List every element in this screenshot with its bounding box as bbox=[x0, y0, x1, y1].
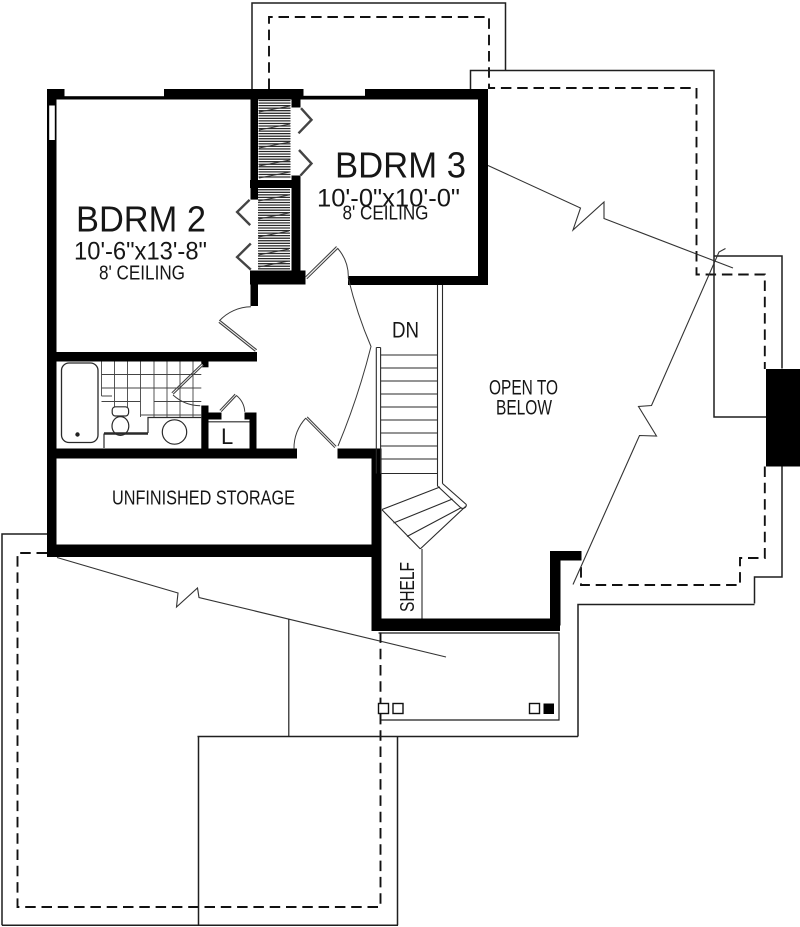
svg-text:L: L bbox=[221, 424, 233, 449]
svg-text:SHELF: SHELF bbox=[397, 562, 419, 612]
svg-text:10'-6"x13'-8": 10'-6"x13'-8" bbox=[74, 238, 207, 266]
svg-text:UNFINISHED STORAGE: UNFINISHED STORAGE bbox=[112, 487, 295, 510]
svg-text:BELOW: BELOW bbox=[496, 396, 553, 420]
svg-text:8' CEILING: 8' CEILING bbox=[99, 263, 185, 285]
svg-text:DN: DN bbox=[392, 318, 419, 343]
svg-text:BDRM 2: BDRM 2 bbox=[76, 199, 206, 240]
svg-text:BDRM 3: BDRM 3 bbox=[335, 145, 466, 186]
svg-text:8' CEILING: 8' CEILING bbox=[343, 203, 429, 225]
